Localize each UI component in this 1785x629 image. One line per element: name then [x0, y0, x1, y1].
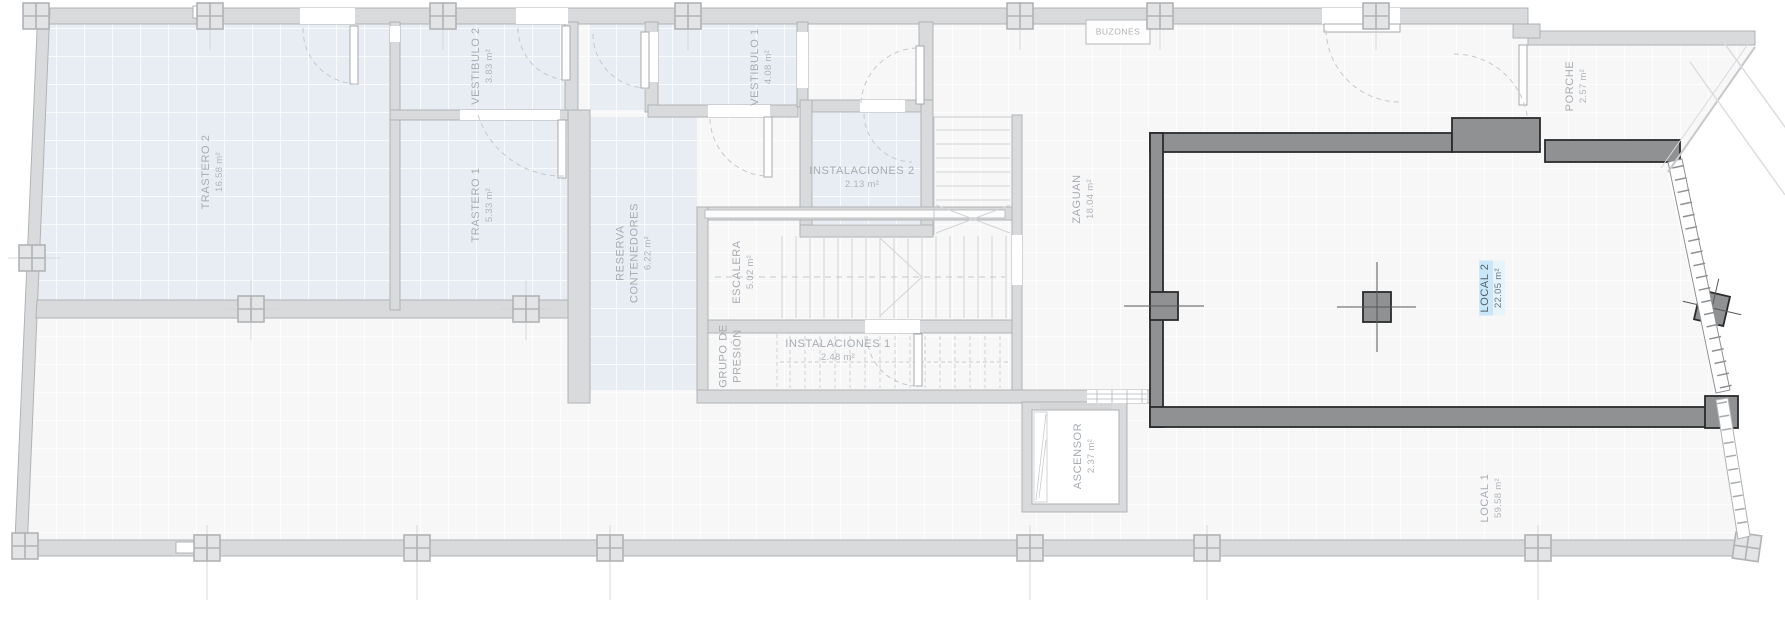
room-label-instalaciones-1[interactable]: INSTALACIONES 1 2.48 m²	[785, 338, 890, 364]
room-label-trastero-1[interactable]: TRASTERO 1 5.33 m²	[470, 167, 496, 242]
room-label-zaguan[interactable]: ZAGUAN 18.04 m²	[1071, 174, 1097, 223]
room-label-vestibulo-1[interactable]: VESTIBULO 1 4.08 m²	[749, 28, 775, 106]
room-label-vestibulo-2[interactable]: VESTIBULO 2 3.83 m²	[470, 27, 496, 105]
mailboxes-label: BUZONES	[1096, 27, 1141, 38]
room-label-escalera[interactable]: ESCALERA 5.02 m²	[731, 240, 757, 304]
room-label-instalaciones-2[interactable]: INSTALACIONES 2 2.13 m²	[809, 165, 914, 191]
room-area-lobby-strip	[590, 24, 645, 110]
floor-plan: TRASTERO 2 16.58 m² VESTIBULO 2 3.83 m² …	[0, 0, 1785, 629]
room-label-grupo-de-presion[interactable]: GRUPO DE PRESIÓN	[717, 321, 745, 391]
room-label-ascensor[interactable]: ASCENSOR 2.37 m²	[1072, 423, 1098, 490]
room-label-local-2-selected[interactable]: LOCAL 2 22.05 m²	[1479, 260, 1505, 315]
room-label-porche[interactable]: PORCHE 2.57 m²	[1564, 61, 1590, 112]
room-label-trastero-2[interactable]: TRASTERO 2 16.58 m²	[200, 134, 226, 209]
room-area-vestibulo-1	[658, 24, 797, 105]
room-label-local-1[interactable]: LOCAL 1 59.58 m²	[1479, 473, 1505, 522]
room-label-reserva-contenedores[interactable]: RESERVA CONTENEDORES 6.22 m²	[614, 199, 653, 307]
floor-plan-drawing	[0, 0, 1785, 629]
